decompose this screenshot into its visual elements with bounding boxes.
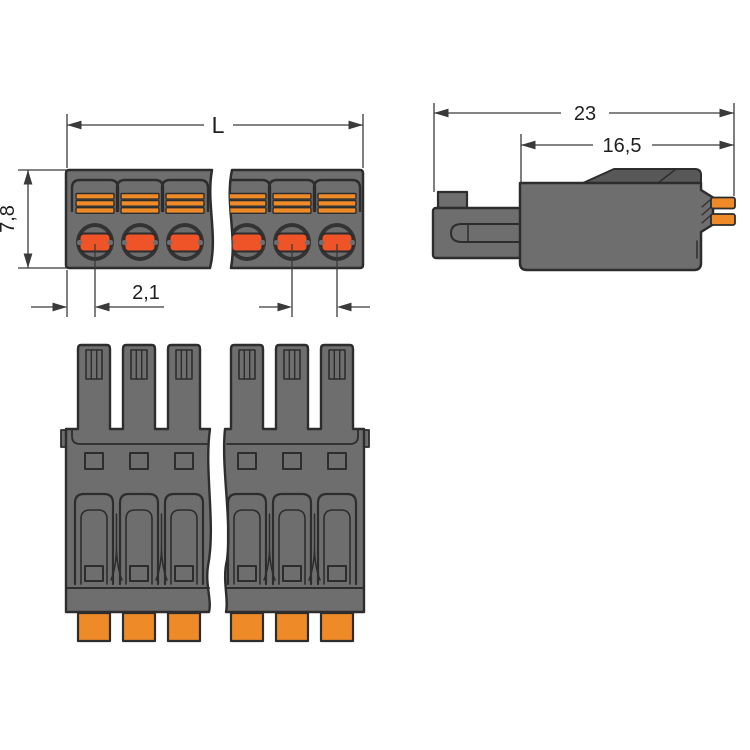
- arrowhead-left-icon: [434, 109, 449, 118]
- latch-block: [433, 208, 521, 258]
- dimension-label: 2,1: [132, 282, 160, 304]
- housing-top-face: [583, 169, 701, 183]
- front-view: [61, 345, 369, 641]
- contact-pin: [711, 214, 735, 225]
- arrowhead-left-icon: [521, 141, 536, 150]
- latch-tab: [438, 192, 467, 208]
- arrowhead-right-icon: [720, 109, 735, 118]
- arrowhead-up-icon: [24, 170, 33, 185]
- arrowhead-left-icon: [67, 121, 82, 130]
- dimension-label: 23: [574, 103, 596, 125]
- dimension-label: 16,5: [603, 135, 642, 157]
- drawing-canvas: L 7,8 2,1: [0, 0, 750, 750]
- arrowhead-right-icon: [349, 121, 364, 130]
- arrowhead-right-icon: [53, 303, 68, 312]
- arrowhead-left-icon: [95, 303, 110, 312]
- arrowhead-right-icon: [720, 141, 735, 150]
- side-view: 23 16,5: [433, 103, 735, 270]
- dimension-label: 7,8: [0, 205, 19, 233]
- arrowhead-right-icon: [278, 303, 293, 312]
- dimension-length-L: L: [67, 112, 363, 168]
- contact-pin: [711, 198, 735, 209]
- housing-body: [520, 183, 713, 270]
- dimension-label: L: [212, 112, 225, 138]
- top-view: L 7,8 2,1: [0, 112, 370, 317]
- arrowhead-down-icon: [24, 254, 33, 269]
- technical-drawing: L 7,8 2,1: [0, 0, 750, 750]
- arrowhead-left-icon: [337, 303, 352, 312]
- dimension-height-7-8: 7,8: [0, 170, 66, 268]
